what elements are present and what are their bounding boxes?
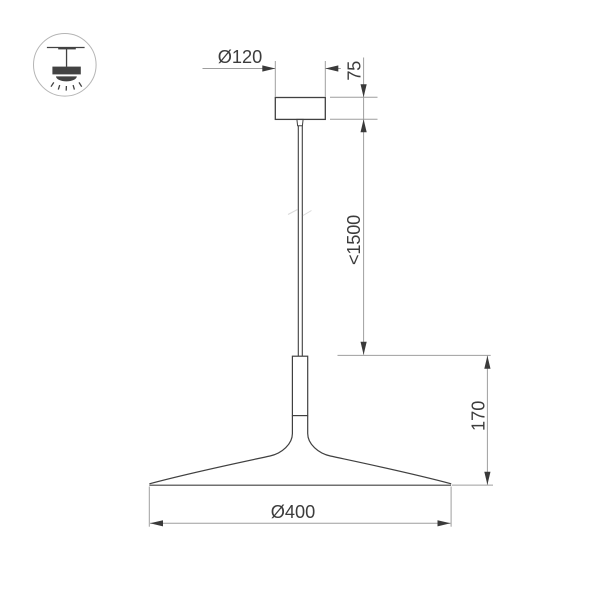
svg-text:Ø120: Ø120 xyxy=(218,47,263,67)
svg-text:75: 75 xyxy=(344,61,364,81)
svg-text:Ø400: Ø400 xyxy=(271,502,316,522)
svg-text:<1500: <1500 xyxy=(344,215,364,265)
svg-text:170: 170 xyxy=(468,401,488,431)
